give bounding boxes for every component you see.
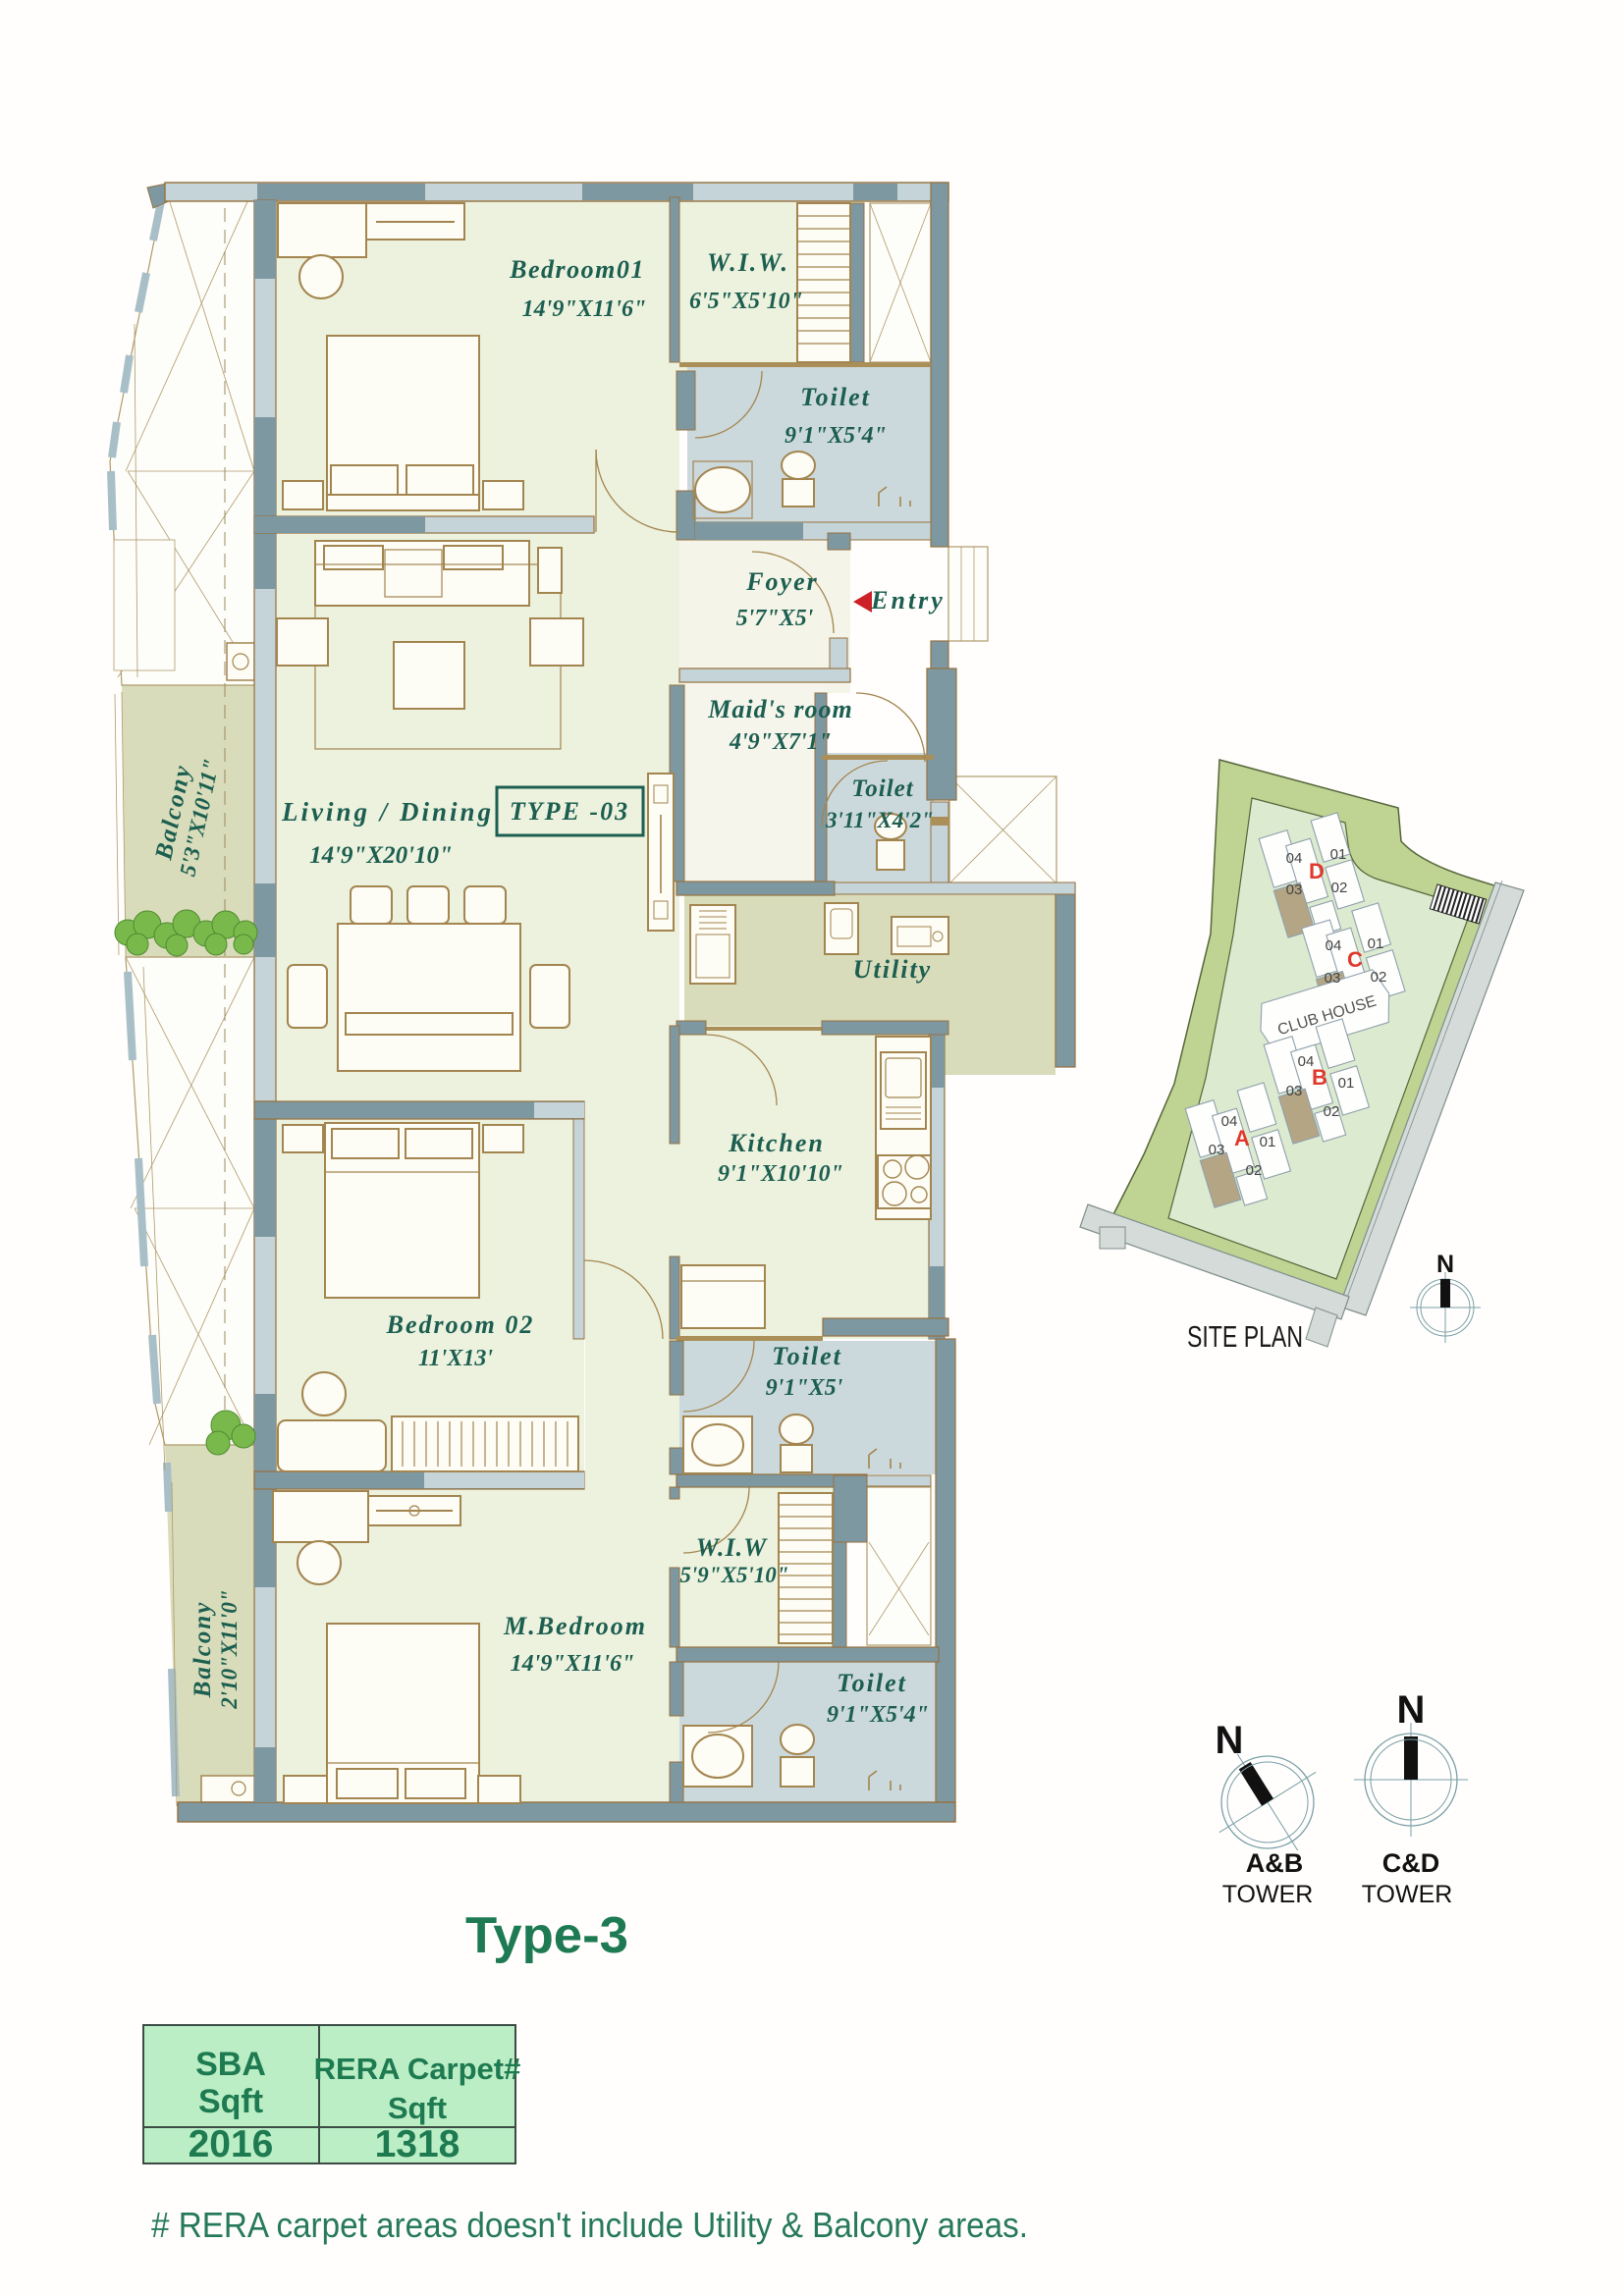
svg-text:01: 01 xyxy=(1338,1075,1355,1092)
svg-text:14'9"X11'6": 14'9"X11'6" xyxy=(522,296,647,322)
svg-text:01: 01 xyxy=(1330,846,1347,863)
svg-text:Toilet: Toilet xyxy=(851,775,913,802)
svg-text:C&D: C&D xyxy=(1382,1848,1440,1878)
svg-text:9'1"X5'4": 9'1"X5'4" xyxy=(827,1702,929,1728)
svg-text:14'9"X11'6": 14'9"X11'6" xyxy=(511,1651,635,1677)
svg-text:Utility: Utility xyxy=(853,955,932,984)
svg-text:Sqft: Sqft xyxy=(198,2083,263,2120)
svg-text:N: N xyxy=(1397,1688,1426,1732)
svg-text:04: 04 xyxy=(1286,850,1303,867)
svg-text:01: 01 xyxy=(1260,1134,1276,1150)
svg-text:02: 02 xyxy=(1246,1162,1263,1179)
svg-text:14'9"X20'10": 14'9"X20'10" xyxy=(309,842,453,869)
svg-text:N: N xyxy=(1436,1251,1454,1278)
svg-text:03: 03 xyxy=(1286,881,1303,898)
svg-text:02: 02 xyxy=(1324,1103,1340,1120)
svg-text:Balcony: Balcony xyxy=(189,1601,216,1699)
svg-text:02: 02 xyxy=(1331,880,1348,896)
svg-text:Maid's room: Maid's room xyxy=(707,695,853,723)
svg-text:W.I.W.: W.I.W. xyxy=(707,248,789,277)
svg-text:A&B: A&B xyxy=(1246,1848,1304,1878)
svg-text:Foyer: Foyer xyxy=(745,567,819,596)
svg-text:C: C xyxy=(1347,947,1363,972)
svg-text:02: 02 xyxy=(1371,969,1387,986)
svg-text:# RERA carpet areas doesn't in: # RERA carpet areas doesn't include Util… xyxy=(151,2205,1028,2245)
svg-text:Living / Dining: Living / Dining xyxy=(281,797,494,827)
svg-text:Toilet: Toilet xyxy=(837,1669,907,1697)
svg-text:Kitchen: Kitchen xyxy=(728,1129,825,1157)
svg-text:03: 03 xyxy=(1325,970,1341,987)
svg-text:W.I.W: W.I.W xyxy=(696,1533,768,1562)
svg-text:5'7"X5': 5'7"X5' xyxy=(736,606,814,631)
svg-text:1318: 1318 xyxy=(375,2123,460,2165)
svg-text:9'1"X5': 9'1"X5' xyxy=(766,1375,843,1401)
svg-text:D: D xyxy=(1309,859,1325,883)
svg-text:Toilet: Toilet xyxy=(772,1342,842,1370)
svg-text:SITE PLAN: SITE PLAN xyxy=(1187,1319,1303,1354)
svg-text:2016: 2016 xyxy=(189,2123,274,2165)
svg-text:Toilet: Toilet xyxy=(800,383,871,411)
svg-text:11'X13': 11'X13' xyxy=(418,1346,493,1371)
svg-text:04: 04 xyxy=(1326,937,1342,954)
svg-text:A: A xyxy=(1234,1126,1250,1150)
svg-text:M.Bedroom: M.Bedroom xyxy=(503,1612,647,1640)
svg-text:TOWER: TOWER xyxy=(1222,1881,1314,1908)
svg-text:Entry: Entry xyxy=(870,586,946,614)
svg-text:3'11"X4'2": 3'11"X4'2" xyxy=(825,808,934,832)
svg-text:01: 01 xyxy=(1368,935,1384,952)
svg-text:6'5"X5'10": 6'5"X5'10" xyxy=(689,289,803,314)
svg-text:Type-3: Type-3 xyxy=(465,1907,628,1964)
svg-text:9'1"X10'10": 9'1"X10'10" xyxy=(718,1161,843,1187)
svg-text:Sqft: Sqft xyxy=(388,2091,447,2125)
svg-text:9'1"X5'4": 9'1"X5'4" xyxy=(785,423,887,449)
svg-text:03: 03 xyxy=(1209,1142,1225,1158)
svg-text:2'10"X11'0": 2'10"X11'0" xyxy=(217,1589,242,1709)
svg-text:TOWER: TOWER xyxy=(1362,1881,1453,1908)
svg-text:N: N xyxy=(1216,1719,1244,1762)
svg-text:B: B xyxy=(1312,1065,1327,1090)
svg-text:5'9"X5'10": 5'9"X5'10" xyxy=(679,1563,788,1587)
svg-text:03: 03 xyxy=(1286,1083,1303,1099)
svg-text:TYPE -03: TYPE -03 xyxy=(510,797,629,826)
svg-text:4'9"X7'1": 4'9"X7'1" xyxy=(729,729,832,755)
svg-text:SBA: SBA xyxy=(195,2046,266,2083)
svg-text:Bedroom 02: Bedroom 02 xyxy=(386,1310,535,1339)
svg-text:Bedroom01: Bedroom01 xyxy=(509,255,645,284)
svg-text:RERA Carpet#: RERA Carpet# xyxy=(314,2052,521,2086)
